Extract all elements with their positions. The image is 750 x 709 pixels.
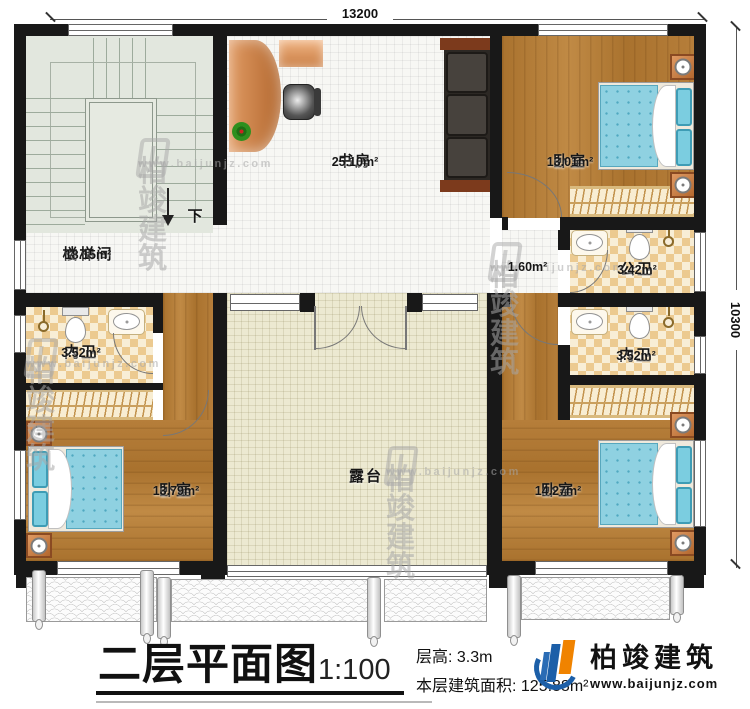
nightstand xyxy=(670,54,696,80)
brand-website: www.baijunjz.com xyxy=(590,677,718,690)
roof-tile-band xyxy=(384,579,487,622)
title-underline-thin xyxy=(96,701,432,703)
window xyxy=(422,294,478,311)
wall-hall-south-right xyxy=(487,293,510,307)
wall-bath-divider xyxy=(558,293,694,307)
room-label-public-bath: 公卫3.42m² xyxy=(592,255,682,285)
window xyxy=(230,294,300,311)
nightstand xyxy=(670,172,696,198)
chair-armrest xyxy=(314,88,321,116)
floor-plan-canvas: 柏竣建筑www.baijunjz.com 柏竣建筑www.baijunjz.co… xyxy=(0,0,750,709)
bed-se-mattress xyxy=(600,443,658,525)
potted-plant xyxy=(232,122,251,141)
wall-bedroom-ne-south xyxy=(560,217,694,230)
window xyxy=(68,24,173,36)
bed-sw-pillow xyxy=(32,451,48,488)
room-label-bedroom-se: 卧室14.27m² xyxy=(508,476,608,506)
nightstand xyxy=(670,530,696,556)
window xyxy=(14,240,26,290)
window xyxy=(14,450,26,520)
stair-direction-arrowhead xyxy=(162,215,174,226)
bed-sw-pillow xyxy=(32,491,48,527)
porch-column xyxy=(507,575,521,638)
wall-bedroom-se-south xyxy=(668,561,706,575)
stair-treads-left xyxy=(26,98,85,233)
title-underline xyxy=(96,691,404,695)
room-label-study: 书房25.10m² xyxy=(305,147,405,177)
dimension-tick xyxy=(697,12,708,23)
sofa-cushion xyxy=(446,94,488,136)
wall-terrace-door-post xyxy=(407,293,422,312)
porch-column xyxy=(32,570,46,622)
terrace-floor xyxy=(227,293,487,567)
window xyxy=(694,232,706,292)
room-label-terrace: 露台 xyxy=(326,466,406,488)
room-label-stairwell: 楼梯间18.15m² xyxy=(38,240,138,270)
bed-ne-pillow xyxy=(676,88,692,126)
sink-basin xyxy=(576,234,603,251)
wall-stair-right xyxy=(213,36,227,225)
floor-drain xyxy=(38,321,49,332)
window xyxy=(535,561,668,575)
toilet-tank xyxy=(62,307,89,316)
wall-terrace-west xyxy=(213,293,227,567)
wall-study-east xyxy=(490,36,502,218)
room-label-hall-niche: 1.60m² xyxy=(495,259,560,275)
nightstand xyxy=(26,421,52,446)
terrace-door-leaf xyxy=(405,306,407,350)
sofa-cushion xyxy=(446,137,488,178)
wall-innerbath-left-south xyxy=(14,383,163,390)
window xyxy=(694,336,706,374)
nightstand xyxy=(670,412,696,438)
sink-basin xyxy=(113,313,140,330)
plan-scale: 1:100 xyxy=(318,656,391,685)
dimension-height-label: 10300 xyxy=(728,290,744,350)
toilet-bowl xyxy=(629,313,650,339)
wall-stub xyxy=(682,575,704,588)
sofa-cushion xyxy=(446,52,488,93)
wall-bedroom-se-south xyxy=(487,561,535,575)
wardrobe-sw xyxy=(26,389,153,420)
stair-landing xyxy=(85,98,157,222)
porch-column xyxy=(140,570,154,636)
bed-se-pillow xyxy=(676,487,692,524)
bed-ne-pillow xyxy=(676,129,692,166)
bed-sw-mattress xyxy=(66,449,122,529)
window xyxy=(14,315,26,353)
roof-tile-band xyxy=(521,577,670,620)
porch-column xyxy=(367,577,381,639)
brand-name: 柏竣建筑 xyxy=(590,645,718,672)
wall-terrace-east xyxy=(487,293,502,567)
window xyxy=(694,440,706,527)
bed-se-blanket xyxy=(652,443,676,525)
room-label-inner-bath-right: 内卫3.52m² xyxy=(591,341,681,371)
sink-basin xyxy=(576,313,603,330)
desk-chair xyxy=(283,84,315,120)
sofa-frame-top xyxy=(440,38,494,50)
room-label-inner-bath-left: 内卫3.52m² xyxy=(36,338,126,368)
room-label-bedroom-ne: 卧室13.01m² xyxy=(520,147,620,177)
desk-shelf xyxy=(279,40,323,67)
dimension-tick xyxy=(45,12,56,23)
dimension-width-label: 13200 xyxy=(327,5,393,22)
bed-se-pillow xyxy=(676,446,692,484)
stair-down-label: 下 xyxy=(184,206,208,228)
nightstand xyxy=(26,533,52,558)
plan-title: 二层平面图 xyxy=(98,644,318,687)
wall-innerbath-right-south xyxy=(570,375,694,385)
wall-innerbath-right-west xyxy=(558,345,570,420)
window xyxy=(57,561,180,575)
sofa-frame-bottom xyxy=(440,180,494,192)
stair-direction-arrow xyxy=(167,188,169,216)
floor-drain xyxy=(663,236,674,247)
wall-publicbath-west xyxy=(558,230,570,250)
stair-treads-right xyxy=(157,98,213,222)
wall-terrace-door-post xyxy=(300,293,315,312)
bed-ne-blanket xyxy=(652,85,676,167)
floor-drain xyxy=(663,317,674,328)
wall-hall-south-left xyxy=(14,293,163,307)
room-label-bedroom-sw: 卧室13.79m² xyxy=(126,476,226,506)
porch-column xyxy=(157,577,171,639)
window xyxy=(538,24,668,36)
terrace-railing xyxy=(227,565,487,577)
roof-tile-band xyxy=(171,579,369,622)
wall-bedroom-ne-south xyxy=(502,217,508,230)
wall-innerbath-left-east xyxy=(153,307,163,333)
stairwell-graphic xyxy=(26,36,213,233)
wall-bedroom-sw-south xyxy=(180,561,227,575)
porch-column xyxy=(670,575,684,615)
floor-height-label: 层高: 3.3m xyxy=(416,648,492,667)
